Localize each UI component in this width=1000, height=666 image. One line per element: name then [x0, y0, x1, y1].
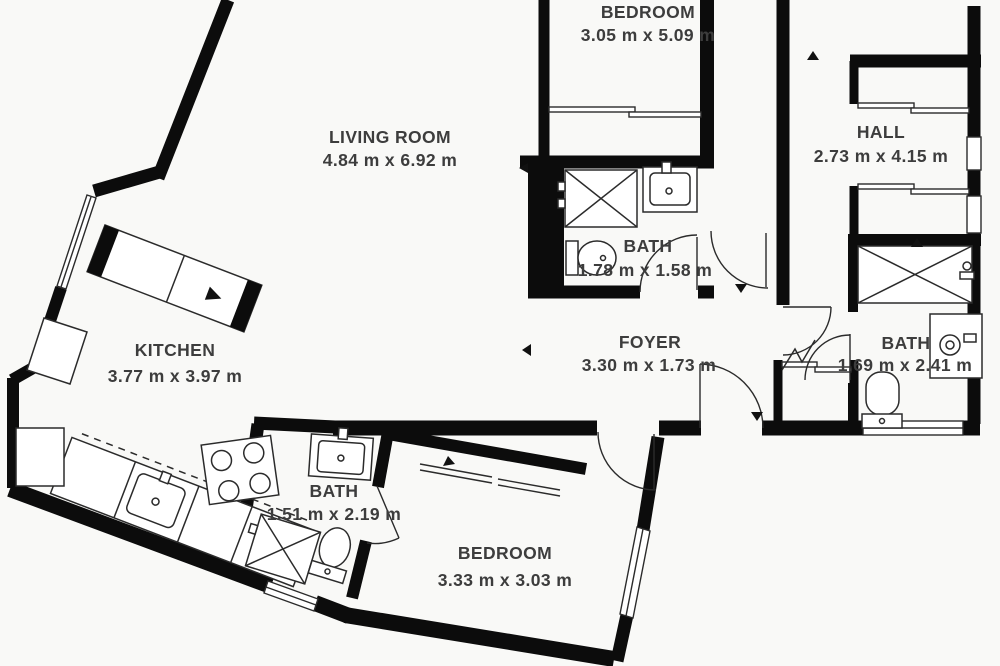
closet-slider-bedroom-bottom — [420, 464, 560, 496]
room-name: FOYER — [619, 332, 681, 352]
room-name: BATH — [882, 333, 931, 353]
room-label-living-room: LIVING ROOM 4.84 m x 6.92 m — [323, 127, 457, 170]
shower-right-bath — [858, 246, 974, 303]
room-name: LIVING ROOM — [329, 127, 451, 147]
floor-plan-page: BEDROOM 3.05 m x 5.09 m LIVING ROOM 4.84… — [0, 0, 1000, 666]
toilet-right-bath — [862, 372, 902, 428]
faucet-icon — [963, 262, 971, 270]
kitchen-cabinet — [16, 428, 64, 486]
room-dims: 3.77 m x 3.97 m — [108, 366, 242, 386]
door-corridor-top — [711, 231, 768, 288]
shower-middle-bath — [558, 170, 637, 227]
closet-slider-bedroom-top-b — [629, 112, 701, 117]
window-hall-right-lower — [967, 196, 981, 233]
washer-handle-icon — [964, 334, 976, 342]
closet-slider-hall-top-a — [858, 103, 914, 108]
room-name: KITCHEN — [135, 340, 216, 360]
wall-livingroom-diagonal — [158, 0, 228, 178]
wall-bottom-left-b — [315, 603, 349, 616]
closet-slider-hall-top-b — [911, 108, 969, 113]
wall-bath-bedroom-divider-a — [378, 432, 388, 487]
wardrobe-closet — [87, 225, 262, 332]
room-label-bedroom-top: BEDROOM 3.05 m x 5.09 m — [581, 2, 715, 45]
stove — [201, 435, 279, 504]
wall-bedroom-right-a — [643, 437, 658, 530]
room-dims: 4.84 m x 6.92 m — [323, 150, 457, 170]
wall-bath-bedroom-divider-b — [352, 541, 366, 598]
room-dims: 1.51 m x 2.19 m — [267, 504, 401, 524]
sink-middle-bath — [643, 162, 697, 212]
threshold-arrow-icon — [735, 284, 747, 293]
room-name: BATH — [310, 481, 359, 501]
kitchen-cabinet — [27, 318, 87, 384]
room-label-foyer: FOYER 3.30 m x 1.73 m — [582, 332, 716, 375]
wall-bath-small-top — [254, 423, 335, 427]
room-label-hall: HALL 2.73 m x 4.15 m — [814, 122, 948, 166]
room-dims: 3.05 m x 5.09 m — [581, 25, 715, 45]
room-dims: 2.73 m x 4.15 m — [814, 146, 948, 166]
shower-handle-icon — [558, 199, 565, 208]
door-corridor-hall — [783, 307, 831, 355]
window-livingroom-left-mullion — [61, 197, 91, 287]
faucet-icon — [960, 272, 974, 279]
room-dims: 1.69 m x 2.41 m — [838, 355, 972, 375]
wall-bath-middle-pillar — [528, 156, 564, 298]
room-name: BATH — [624, 236, 673, 256]
room-label-kitchen: KITCHEN 3.77 m x 3.97 m — [108, 340, 242, 386]
closet-slider-hall-bottom-b — [911, 189, 969, 194]
threshold-arrow-icon — [751, 412, 763, 421]
wall-bedroom-top — [388, 434, 586, 469]
wall-livingroom-jog — [94, 171, 163, 191]
threshold-arrow-icon — [443, 456, 455, 466]
floor-plan-canvas: BEDROOM 3.05 m x 5.09 m LIVING ROOM 4.84… — [0, 0, 1000, 666]
window-hall-right-upper — [967, 137, 981, 170]
threshold-arrow-icon — [807, 51, 819, 60]
room-name: BEDROOM — [601, 2, 695, 22]
wall-bedroom-right-b — [617, 615, 627, 661]
closet-slider-hall-bottom-a — [858, 184, 914, 189]
faucet-icon — [662, 162, 671, 173]
wall-bottom-bedroom — [345, 615, 614, 659]
closet-slider-bedroom-top-a — [549, 107, 635, 112]
room-label-bedroom-bottom: BEDROOM 3.33 m x 3.03 m — [438, 543, 572, 590]
shower-handle-icon — [248, 524, 257, 535]
shower-handle-icon — [558, 182, 565, 191]
room-dims: 3.30 m x 1.73 m — [582, 355, 716, 375]
faucet-icon — [338, 428, 348, 440]
room-name: BEDROOM — [458, 543, 552, 563]
room-dims: 1.78 m x 1.58 m — [578, 260, 712, 280]
room-dims: 3.33 m x 3.03 m — [438, 570, 572, 590]
threshold-arrow-icon — [522, 344, 531, 356]
room-name: HALL — [857, 122, 905, 142]
